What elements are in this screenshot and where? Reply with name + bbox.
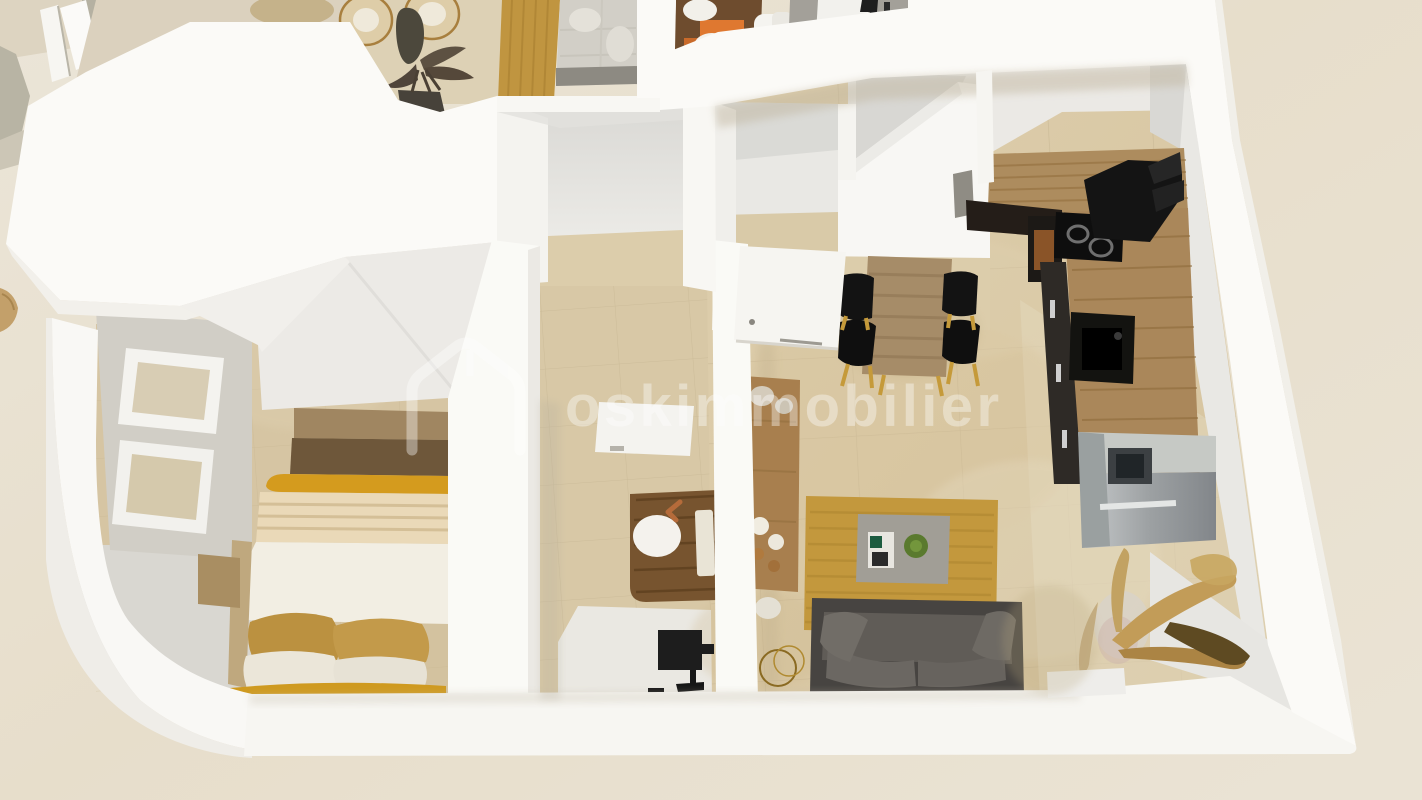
svg-text:oskimmobilier: oskimmobilier	[565, 374, 1002, 439]
